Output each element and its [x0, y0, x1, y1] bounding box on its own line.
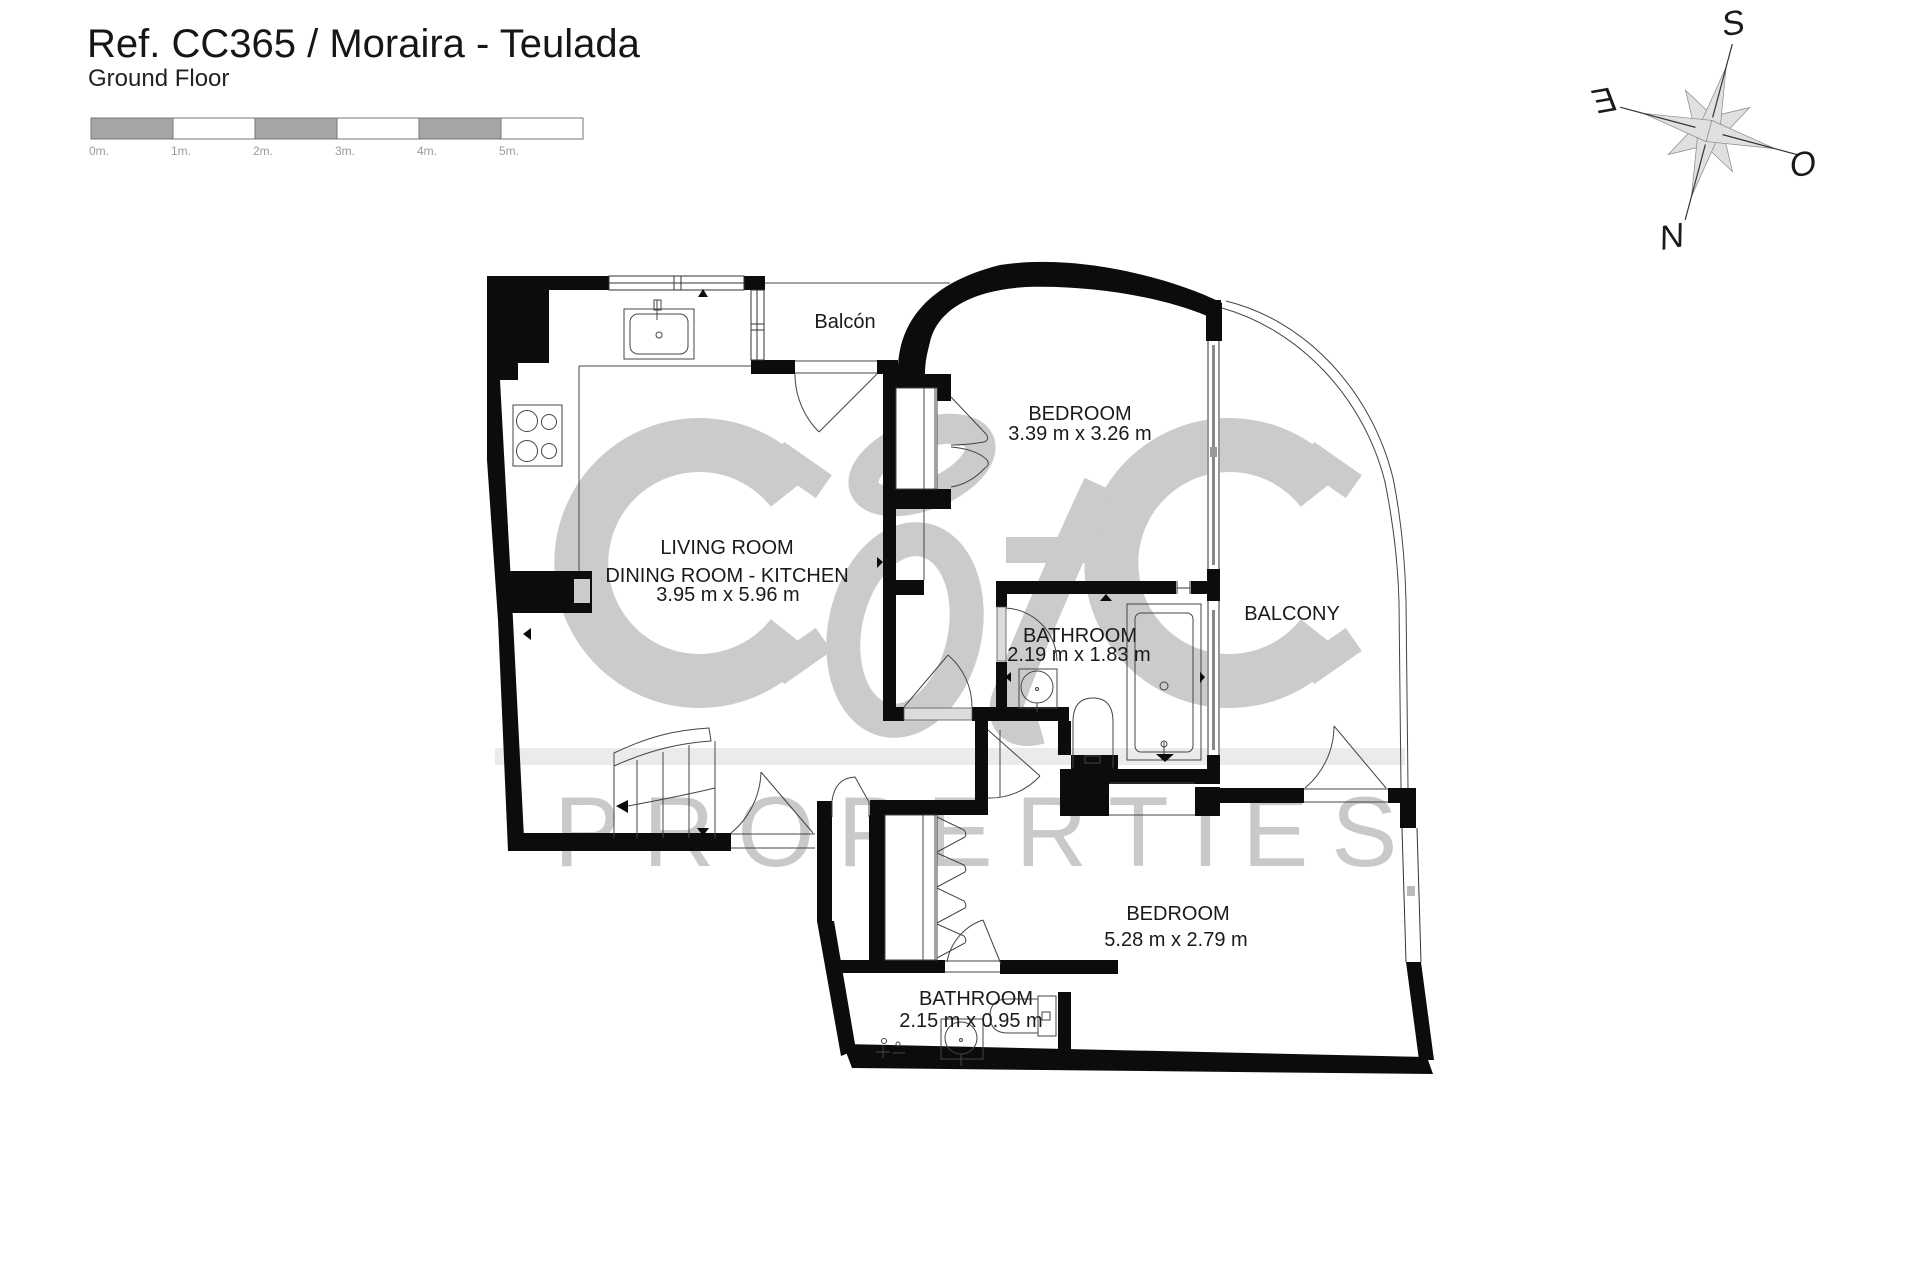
svg-text:2.15 m x 0.95 m: 2.15 m x 0.95 m — [899, 1010, 1042, 1032]
svg-text:5.28 m x 2.79 m: 5.28 m x 2.79 m — [1104, 929, 1247, 951]
svg-text:Ref. CC365 / Moraira - Teulada: Ref. CC365 / Moraira - Teulada — [87, 22, 641, 66]
svg-text:BEDROOM: BEDROOM — [1028, 403, 1131, 425]
svg-text:BATHROOM: BATHROOM — [919, 988, 1033, 1010]
svg-text:BEDROOM: BEDROOM — [1126, 903, 1229, 925]
svg-text:Ground Floor: Ground Floor — [88, 65, 229, 92]
svg-text:LIVING ROOM: LIVING ROOM — [660, 537, 793, 559]
svg-text:3m.: 3m. — [335, 144, 355, 158]
svg-text:N: N — [1656, 216, 1687, 258]
svg-text:3.95 m x 5.96 m: 3.95 m x 5.96 m — [656, 584, 799, 606]
svg-text:1m.: 1m. — [171, 144, 191, 158]
svg-text:Balcón: Balcón — [814, 311, 875, 333]
svg-text:E: E — [1590, 80, 1619, 121]
svg-text:S: S — [1719, 3, 1748, 44]
svg-text:5m.: 5m. — [499, 144, 519, 158]
svg-text:O: O — [1787, 143, 1820, 185]
svg-text:4m.: 4m. — [417, 144, 437, 158]
svg-text:2.19 m x 1.83 m: 2.19 m x 1.83 m — [1007, 644, 1150, 666]
svg-text:2m.: 2m. — [253, 144, 273, 158]
svg-text:0m.: 0m. — [89, 144, 109, 158]
svg-text:BALCONY: BALCONY — [1244, 603, 1340, 625]
svg-text:3.39 m x 3.26 m: 3.39 m x 3.26 m — [1008, 423, 1151, 445]
